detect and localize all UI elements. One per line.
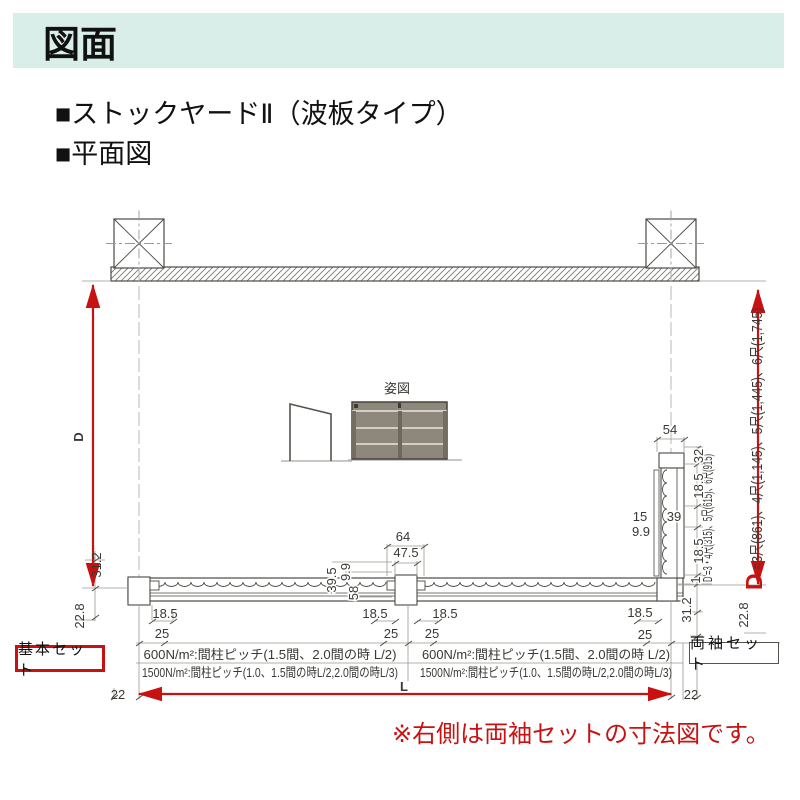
- front-view-center-post: [398, 411, 402, 458]
- dim-18-5-left: 18.5: [152, 606, 177, 621]
- pitch-600-right: 600N/m²:間柱ピッチ(1.5間、2.0間の時 L/2): [422, 647, 670, 662]
- plan-drawing: D L D =3尺(861)、4尺(1,145)、5尺(1,445)、6尺(1,…: [0, 0, 800, 800]
- page: 図面 ■ストックヤードⅡ（波板タイプ） ■平面図: [0, 0, 800, 800]
- elevation-inset: 姿図: [281, 381, 462, 461]
- bottom-post-left: [128, 577, 150, 605]
- bottom-wall: [128, 575, 683, 605]
- dim-64: 64: [396, 529, 410, 544]
- dim-25-center-l: 25: [384, 626, 398, 641]
- front-view-edge-r: [443, 411, 447, 458]
- pitch-600-left: 600N/m²:間柱ピッチ(1.5間、2.0間の時 L/2): [144, 647, 397, 662]
- dim-9-9-center: 9.9: [338, 563, 353, 581]
- bottom-post-center-flange-l: [387, 581, 395, 590]
- dim-label-D: D: [71, 432, 86, 441]
- dim-18-5-center-l: 18.5: [362, 606, 387, 621]
- bottom-post-left-flange: [150, 581, 159, 590]
- dim-15: 15: [633, 509, 647, 524]
- dim-22-left: 22: [111, 687, 125, 702]
- dim-25-center-r: 25: [425, 626, 439, 641]
- dim-22-right: 22: [684, 687, 698, 702]
- dim-25-right: 25: [638, 627, 652, 642]
- side-view-outline: [290, 404, 331, 461]
- dim-formula-D: D =3尺(861)、4尺(1,145)、5尺(1,445)、6尺(1,745): [741, 308, 767, 590]
- front-view-latch: [354, 404, 358, 408]
- top-post-left: [106, 211, 172, 277]
- basic-set-tag: 基本セット: [15, 645, 105, 672]
- dim-9-9-side: 9.9: [632, 524, 650, 539]
- dim-18-5-chain-top: 18.5: [691, 473, 706, 498]
- dim-39: 39: [667, 509, 681, 524]
- pitch-1500-left: 1500N/m²:間柱ピッチ(1.0、1.5間の時L/2,2.0間の時L/3): [142, 665, 398, 680]
- top-post-right: [638, 211, 704, 277]
- front-view-top-tick: [398, 403, 401, 408]
- dim-47-5: 47.5: [393, 545, 418, 560]
- dim-1: 1: [688, 576, 703, 583]
- dim-label-L: L: [400, 679, 408, 694]
- dim-18-5-right: 18.5: [627, 605, 652, 620]
- basic-set-label: 基本セット: [18, 638, 102, 680]
- dim-18-5-center-r: 18.5: [432, 606, 457, 621]
- dim-39-5: 39.5: [324, 567, 339, 592]
- dim-18-5-chain-bottom: 18.5: [691, 538, 706, 563]
- bottom-post-center-flange-r: [417, 581, 425, 590]
- bottom-post-center: [395, 575, 417, 605]
- double-sleeve-set-tag: 両袖セット: [689, 642, 779, 664]
- dim-22-8-right: 22.8: [736, 602, 751, 627]
- dim-31-2-right: 31.2: [679, 597, 694, 622]
- dim-54: 54: [663, 422, 677, 437]
- dim-58: 58: [346, 586, 361, 600]
- top-wall-band: [111, 267, 699, 281]
- pitch-1500-right: 1500N/m²:間柱ピッチ(1.0、1.5間の時L/2,2.0間の時L/3): [420, 665, 672, 680]
- front-view-edge-l: [352, 411, 356, 458]
- dim-formula-D-values: =3尺(861)、4尺(1,145)、5尺(1,445)、6尺(1,745): [749, 308, 766, 570]
- bottom-post-right: [657, 578, 677, 601]
- dim-25-left: 25: [155, 626, 169, 641]
- dim-22-8-left: 22.8: [72, 603, 87, 628]
- footnote: ※右側は両袖セットの寸法図です。: [392, 714, 792, 749]
- dim-31-2-left: 31.2: [89, 552, 104, 577]
- dim-32: 32: [691, 449, 706, 463]
- elevation-label: 姿図: [384, 381, 410, 396]
- double-sleeve-set-label: 両袖セット: [690, 632, 778, 674]
- dim-formula-D-letter: D: [741, 573, 767, 590]
